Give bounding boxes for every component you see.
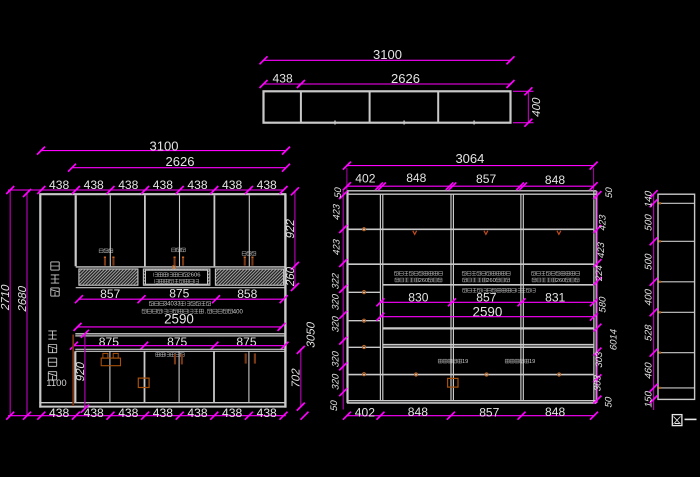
svg-text:460: 460 <box>644 361 655 380</box>
svg-text:3100: 3100 <box>373 47 402 62</box>
svg-text:438: 438 <box>49 406 69 420</box>
svg-text:2606: 2606 <box>188 273 201 279</box>
svg-text:438: 438 <box>118 406 138 420</box>
svg-text:19: 19 <box>529 359 535 365</box>
svg-text:402: 402 <box>355 172 375 186</box>
svg-text:150: 150 <box>644 389 655 408</box>
svg-text:438: 438 <box>49 178 69 192</box>
svg-text:423: 423 <box>596 241 607 260</box>
svg-text:875: 875 <box>236 335 256 349</box>
svg-text:438: 438 <box>257 406 277 420</box>
svg-text:2590: 2590 <box>473 305 503 320</box>
svg-text:3064: 3064 <box>455 151 484 166</box>
svg-text:3100: 3100 <box>150 139 179 154</box>
svg-text:423: 423 <box>331 238 342 257</box>
svg-text:438: 438 <box>222 178 242 192</box>
svg-text:438: 438 <box>187 406 207 420</box>
svg-text:438: 438 <box>273 72 293 86</box>
svg-text:702: 702 <box>289 367 302 389</box>
svg-text:438: 438 <box>222 406 242 420</box>
svg-text:423: 423 <box>598 213 609 232</box>
svg-text:6014: 6014 <box>609 327 620 351</box>
svg-text:438: 438 <box>153 406 173 420</box>
svg-text:320: 320 <box>331 293 342 312</box>
svg-text:848: 848 <box>406 171 426 185</box>
svg-text:857: 857 <box>100 287 120 301</box>
svg-text:922: 922 <box>284 218 297 240</box>
svg-text:400: 400 <box>233 309 244 315</box>
svg-text:34033: 34033 <box>164 302 181 308</box>
svg-text:402: 402 <box>355 405 375 419</box>
svg-text:875: 875 <box>99 335 119 349</box>
svg-text:140: 140 <box>644 189 655 208</box>
svg-text:260: 260 <box>284 265 297 288</box>
svg-text:320: 320 <box>331 372 342 391</box>
svg-text:2626: 2626 <box>166 154 195 169</box>
svg-text:500: 500 <box>644 213 655 232</box>
svg-text:320: 320 <box>331 350 342 369</box>
svg-text:875: 875 <box>169 287 189 301</box>
svg-text:438: 438 <box>153 178 173 192</box>
svg-text:322: 322 <box>331 272 342 291</box>
svg-text:500: 500 <box>644 252 655 271</box>
svg-text:528: 528 <box>644 323 655 342</box>
svg-text:260: 260 <box>486 278 495 284</box>
svg-text:3050: 3050 <box>305 320 318 349</box>
svg-text:848: 848 <box>545 405 565 419</box>
svg-text:260: 260 <box>556 278 565 284</box>
svg-text:857: 857 <box>476 172 496 186</box>
svg-text:920: 920 <box>74 360 87 383</box>
svg-text:2710: 2710 <box>0 283 12 312</box>
svg-text:19: 19 <box>462 359 468 365</box>
svg-text:400: 400 <box>644 287 655 306</box>
svg-text:260: 260 <box>419 278 428 284</box>
svg-text:875: 875 <box>167 335 187 349</box>
svg-text:2590: 2590 <box>164 312 194 327</box>
svg-text:438: 438 <box>84 178 104 192</box>
svg-text:438: 438 <box>118 178 138 192</box>
svg-text:303: 303 <box>594 350 605 369</box>
svg-text:1100: 1100 <box>46 378 66 389</box>
svg-text:438: 438 <box>257 178 277 192</box>
svg-text:848: 848 <box>545 173 565 187</box>
svg-text:438: 438 <box>84 406 104 420</box>
svg-text:848: 848 <box>408 405 428 419</box>
svg-text:857: 857 <box>479 405 499 419</box>
svg-text:858: 858 <box>237 287 257 301</box>
svg-text:423: 423 <box>331 203 342 222</box>
svg-text:400: 400 <box>530 96 543 119</box>
svg-text:2680: 2680 <box>16 284 29 313</box>
svg-text:320: 320 <box>331 315 342 334</box>
svg-text:580: 580 <box>598 295 609 314</box>
svg-text:303: 303 <box>593 374 604 393</box>
svg-text:2626: 2626 <box>391 71 420 86</box>
svg-text:438: 438 <box>187 178 207 192</box>
